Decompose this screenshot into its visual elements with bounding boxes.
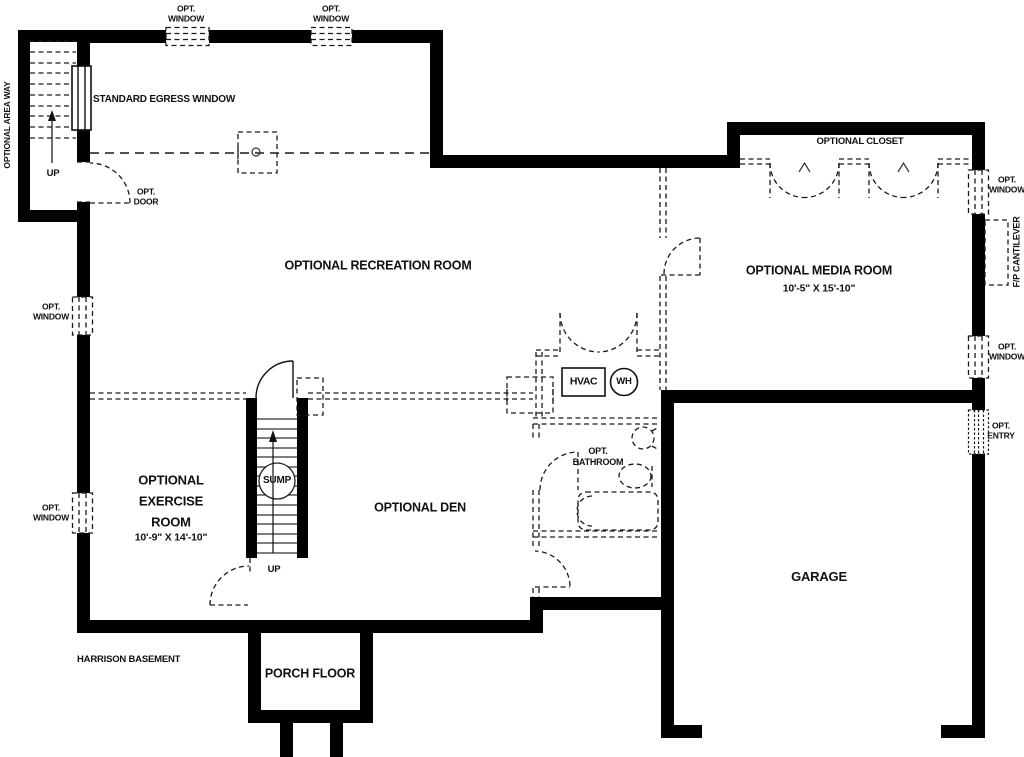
label-opt-door: OPT. DOOR <box>134 187 159 208</box>
label-porch-floor: PORCH FLOOR <box>265 666 355 681</box>
label-opt-bathroom: OPT. BATHROOM <box>573 446 624 468</box>
stair-bottom-door <box>210 558 250 605</box>
label-opt-window-left-1: OPT. WINDOW <box>33 302 69 323</box>
label-opt-window-top-2: OPT. WINDOW <box>313 4 349 25</box>
label-sump: SUMP <box>263 475 291 487</box>
label-exercise-room: OPTIONAL EXERCISE ROOM <box>138 470 204 533</box>
optional-closet-symbol <box>740 159 972 198</box>
label-opt-entry: OPT. ENTRY <box>987 421 1015 442</box>
opt-door-left <box>77 162 130 203</box>
bathtub <box>578 492 658 530</box>
label-garage: GARAGE <box>791 569 847 585</box>
label-wh: WH <box>616 376 631 388</box>
stair-top-door <box>256 361 293 398</box>
label-fp-cantilever: F/P CANTILEVER <box>1012 216 1023 287</box>
label-media-room: OPTIONAL MEDIA ROOM <box>746 263 892 278</box>
bathroom-fixtures <box>577 427 659 530</box>
bathroom-walls <box>533 418 660 597</box>
floor-plan-drawing <box>0 0 1024 757</box>
fp-cantilever-symbol <box>985 220 1008 285</box>
media-room-door <box>661 238 700 275</box>
opt-entry-symbol <box>969 410 989 454</box>
floor-plan: OPT. WINDOW OPT. WINDOW OPTIONAL AREA WA… <box>0 0 1024 757</box>
label-standard-egress-window: STANDARD EGRESS WINDOW <box>93 94 235 106</box>
label-opt-window-right-1: OPT. WINDOW <box>989 175 1024 196</box>
label-den: OPTIONAL DEN <box>374 500 466 515</box>
label-recreation-room: OPTIONAL RECREATION ROOM <box>284 258 471 273</box>
label-hvac: HVAC <box>570 376 597 389</box>
label-exercise-room-dims: 10'-9" X 14'-10" <box>135 532 207 545</box>
label-media-room-dims: 10'-5" X 15'-10" <box>783 283 855 296</box>
areaway-stairs <box>30 41 76 163</box>
plan-title: HARRISON BASEMENT <box>77 654 180 666</box>
label-opt-window-right-2: OPT. WINDOW <box>989 342 1024 363</box>
den-door <box>535 551 570 587</box>
sink <box>632 427 654 449</box>
toilet <box>619 464 651 488</box>
label-optional-area-way: OPTIONAL AREA WAY <box>2 81 12 168</box>
label-opt-window-top-1: OPT. WINDOW <box>168 4 204 25</box>
label-opt-window-left-2: OPT. WINDOW <box>33 503 69 524</box>
label-up-areaway: UP <box>47 168 60 180</box>
mech-closet <box>536 313 661 420</box>
label-optional-closet: OPTIONAL CLOSET <box>816 136 903 148</box>
label-up-stairs: UP <box>268 564 281 576</box>
standard-egress-window-symbol <box>72 66 91 130</box>
